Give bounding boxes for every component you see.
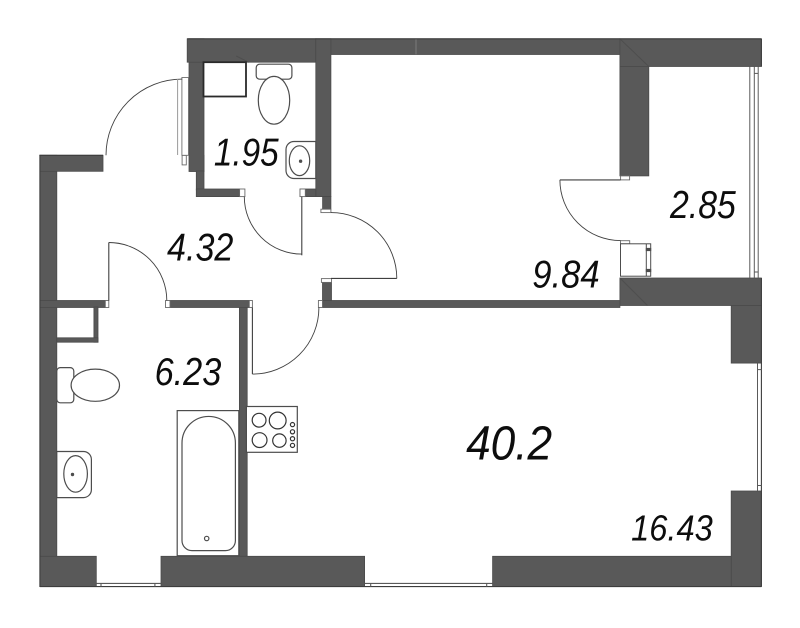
svg-text:40.2: 40.2 [466, 416, 552, 470]
svg-text:2.85: 2.85 [669, 183, 737, 227]
svg-text:16.43: 16.43 [631, 509, 713, 549]
svg-text:1.95: 1.95 [214, 130, 280, 174]
svg-text:6.23: 6.23 [155, 350, 222, 393]
svg-text:4.32: 4.32 [167, 225, 233, 268]
svg-text:9.84: 9.84 [532, 253, 599, 296]
